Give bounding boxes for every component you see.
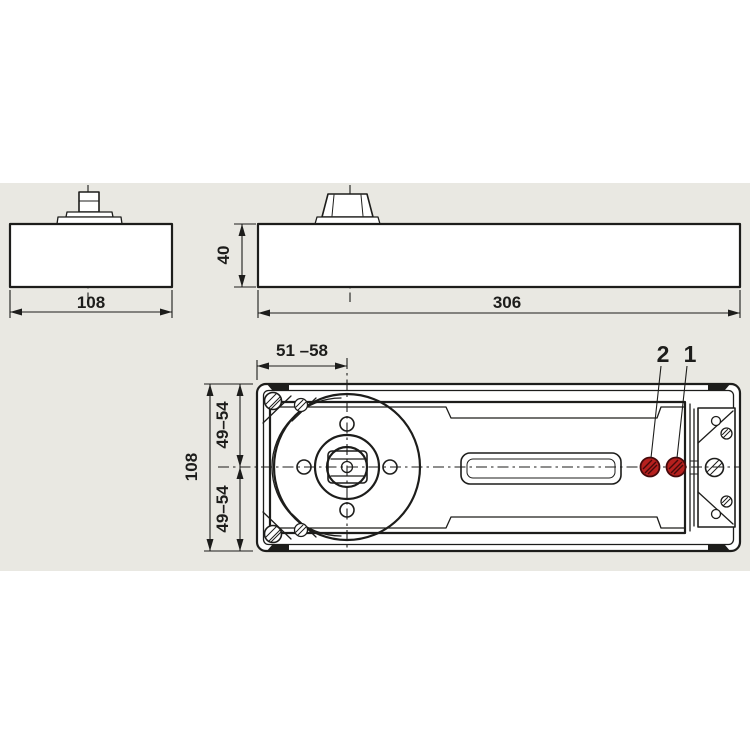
dimension-label-51-58: 51 –58	[276, 341, 328, 360]
dimension-label-40: 40	[214, 246, 233, 265]
end-plate-hole-top	[712, 417, 721, 426]
spindle-cone	[322, 194, 373, 217]
end-plate-screw-bottom-icon	[721, 496, 732, 507]
plan-view: 2 1 51 –58 108 49–54 49–54	[182, 341, 740, 552]
end-plate-hole-bottom	[712, 510, 721, 519]
dimension-label-49-54-top: 49–54	[213, 401, 232, 449]
side-view-long: 40 306	[214, 185, 740, 318]
callout-2-label: 2	[657, 341, 670, 367]
closer-body-small	[10, 224, 172, 287]
technical-drawing-page: 108 40 306	[0, 0, 750, 750]
bracket-screw-top-left-icon	[295, 399, 308, 412]
adjustment-slot-outer	[461, 453, 621, 484]
dimension-label-108-plan: 108	[182, 453, 201, 481]
extension-lines-40	[234, 224, 256, 287]
valve-screw-1-icon	[667, 458, 686, 477]
valve-screw-2-icon	[641, 458, 660, 477]
spindle-shaft	[79, 192, 99, 212]
end-plate-screw-top-icon	[721, 428, 732, 439]
spindle-flange-upper	[66, 212, 113, 217]
dimension-label-306: 306	[493, 293, 521, 312]
corner-screw-bottom-left-icon	[265, 526, 282, 543]
side-view-small: 108	[10, 185, 172, 318]
dimension-drawing: 108 40 306	[0, 0, 750, 750]
dimension-label-108: 108	[77, 293, 105, 312]
corner-screw-top-left-icon	[265, 393, 282, 410]
closer-body-long	[258, 224, 740, 287]
callout-1-label: 1	[684, 341, 697, 367]
dimension-label-49-54-bottom: 49–54	[213, 485, 232, 533]
bracket-screw-bottom-left-icon	[295, 524, 308, 537]
